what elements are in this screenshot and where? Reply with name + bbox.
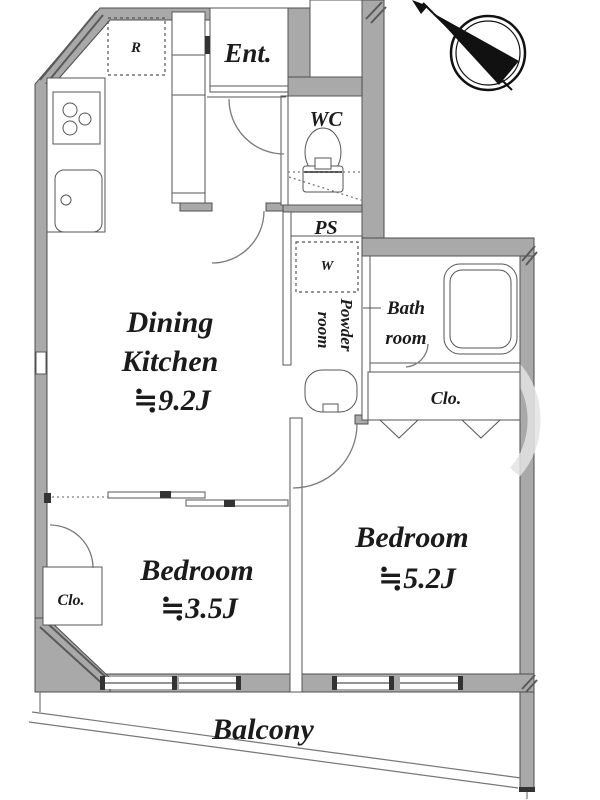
sliding-panel-2 bbox=[186, 500, 288, 506]
wall-niche-bottom bbox=[288, 77, 364, 96]
label-bedroom-small-size: ≒3.5J bbox=[160, 592, 239, 625]
window-cap bbox=[236, 676, 241, 690]
meter-niche bbox=[310, 0, 362, 77]
wall-right-lower bbox=[520, 256, 534, 692]
floor-plan: Dining Kitchen ≒9.2J Bedroom ≒3.5J Bedro… bbox=[0, 0, 600, 800]
window-cap bbox=[458, 676, 463, 690]
label-pipe-space: PS bbox=[313, 217, 337, 239]
wall-hall-divider bbox=[281, 96, 288, 205]
label-bedroom-small: Bedroom bbox=[139, 554, 253, 587]
sliding-panel-1 bbox=[108, 492, 205, 498]
label-dining-kitchen-1: Dining bbox=[126, 306, 214, 339]
wall-hall-bottom-left bbox=[180, 203, 212, 211]
label-powder-room-1: Powder bbox=[337, 298, 356, 352]
wall-dk-divider bbox=[283, 212, 291, 365]
toilet-lid-detail bbox=[315, 158, 331, 169]
label-dining-kitchen-2: Kitchen bbox=[121, 345, 219, 378]
label-dining-kitchen-size: ≒9.2J bbox=[133, 384, 212, 417]
label-bedroom-large-size: ≒5.2J bbox=[378, 562, 457, 595]
label-closet-large: Clo. bbox=[431, 388, 462, 408]
label-washer: W bbox=[321, 259, 335, 274]
balcony-side-wall bbox=[520, 692, 534, 788]
label-wc: WC bbox=[310, 107, 344, 131]
label-balcony: Balcony bbox=[211, 713, 314, 746]
label-entrance: Ent. bbox=[223, 38, 271, 68]
floor-plan-drawing: Dining Kitchen ≒9.2J Bedroom ≒3.5J Bedro… bbox=[0, 0, 600, 800]
entrance-door-tick bbox=[205, 36, 210, 54]
label-bath-room-2: room bbox=[385, 328, 426, 349]
window-cap bbox=[332, 676, 337, 690]
wall-wc-bottom bbox=[283, 205, 362, 212]
wall-bath-top bbox=[362, 238, 534, 256]
wall-bath-closet-divider bbox=[370, 363, 520, 372]
window-cap bbox=[389, 676, 394, 690]
label-closet-small: Clo. bbox=[57, 592, 84, 609]
kitchen-sink bbox=[55, 170, 102, 232]
sliding-cap-1 bbox=[160, 491, 171, 498]
window-cap bbox=[100, 676, 105, 690]
wall-ent-niche bbox=[288, 8, 310, 80]
sliding-cap-2 bbox=[224, 500, 235, 507]
label-refrigerator: R bbox=[130, 40, 141, 56]
label-bedroom-large: Bedroom bbox=[354, 521, 468, 554]
window-cap bbox=[172, 676, 177, 690]
left-wall-vent bbox=[36, 352, 46, 374]
label-bath-room-1: Bath bbox=[386, 298, 425, 319]
kitchen-stove bbox=[53, 92, 100, 144]
storage-cabinet bbox=[172, 12, 205, 203]
balcony-bar-foot bbox=[519, 787, 535, 792]
bathtub-outer bbox=[444, 264, 517, 354]
label-powder-room-2: room bbox=[314, 312, 333, 349]
sliding-end-post bbox=[44, 493, 51, 503]
wall-right-upper bbox=[362, 0, 384, 240]
wall-bedroom-partition bbox=[290, 418, 302, 692]
washbasin-faucet bbox=[323, 404, 338, 412]
